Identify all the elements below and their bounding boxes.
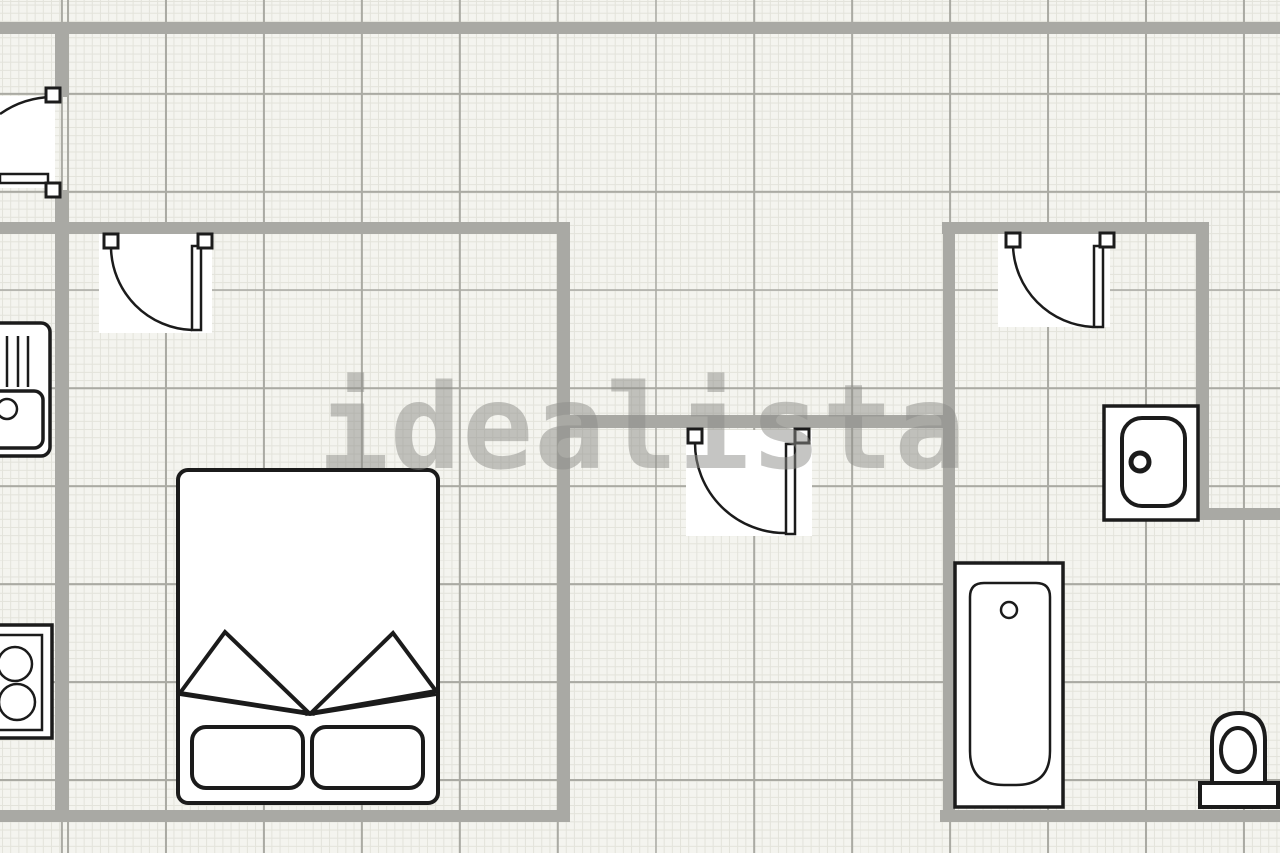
wall-bottom-left — [0, 810, 570, 822]
wall-bedroom-right — [558, 222, 570, 822]
toilet-base — [1200, 783, 1278, 807]
wall-bathroom-top — [942, 222, 1208, 234]
wall-left-lower — [55, 190, 68, 822]
bedroom-door-hinge-right — [198, 234, 212, 248]
idealista-watermark: idealista — [318, 358, 966, 496]
washbasin-drain — [1131, 453, 1149, 471]
washbasin-icon — [1104, 406, 1198, 520]
kitchen-sink-icon — [0, 323, 50, 456]
wall-bottom-right — [940, 810, 1280, 822]
bathroom-door-leaf — [1094, 246, 1103, 327]
bathroom-door-hinge-left — [1006, 233, 1020, 247]
bathtub-icon — [955, 563, 1063, 807]
pillow-left — [192, 727, 303, 788]
bedroom-door-hinge-left — [104, 234, 118, 248]
floor-plan-drawing: idealista — [0, 0, 1280, 853]
wall-bathroom-left — [943, 222, 955, 822]
entry-door-leaf — [0, 174, 48, 183]
bedroom-door — [99, 234, 212, 333]
bedroom-door-leaf — [192, 246, 201, 330]
double-bed-icon — [178, 470, 438, 803]
entry-door — [0, 88, 60, 197]
floor-plan: idealista — [0, 0, 1280, 853]
wall-hall-top — [0, 222, 570, 234]
entry-door-hinge-bottom — [46, 183, 60, 197]
wall-left-upper — [55, 22, 68, 97]
bathroom-door — [998, 233, 1114, 327]
cooktop-icon — [0, 625, 52, 738]
pillow-right — [312, 727, 423, 788]
wall-top — [0, 22, 1280, 34]
cooktop-outer — [0, 625, 52, 738]
toilet-bowl — [1221, 728, 1255, 772]
entry-door-hinge-top — [46, 88, 60, 102]
wall-right-connector — [1196, 508, 1280, 520]
bathroom-door-hinge-right — [1100, 233, 1114, 247]
toilet-icon — [1200, 713, 1278, 807]
